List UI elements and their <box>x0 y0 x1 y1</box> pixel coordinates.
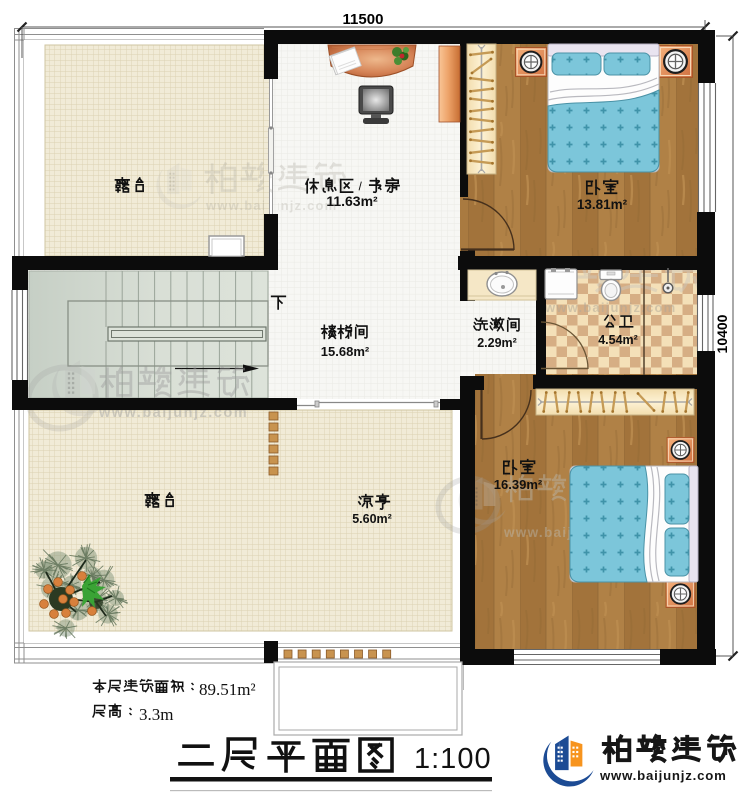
svg-text:4.54m²: 4.54m² <box>598 333 638 347</box>
svg-text:www.baijunjz.com: www.baijunjz.com <box>205 198 337 213</box>
svg-text:1:100: 1:100 <box>414 743 492 775</box>
svg-text:11500: 11500 <box>343 11 384 28</box>
svg-text:www.baijunjz.com: www.baijunjz.com <box>544 300 676 315</box>
svg-text:13.81m²: 13.81m² <box>577 197 628 212</box>
svg-text:10400: 10400 <box>714 314 730 353</box>
svg-text:15.68m²: 15.68m² <box>321 344 370 359</box>
svg-text:11.63m²: 11.63m² <box>326 193 378 209</box>
svg-text:www.baijunjz.com: www.baijunjz.com <box>599 768 727 783</box>
svg-text:2.29m²: 2.29m² <box>477 336 517 350</box>
svg-text:89.51m²: 89.51m² <box>199 680 256 699</box>
svg-text:16.39m²: 16.39m² <box>494 477 543 492</box>
svg-text:5.60m²: 5.60m² <box>352 512 392 526</box>
svg-text:3.3m: 3.3m <box>139 705 173 724</box>
